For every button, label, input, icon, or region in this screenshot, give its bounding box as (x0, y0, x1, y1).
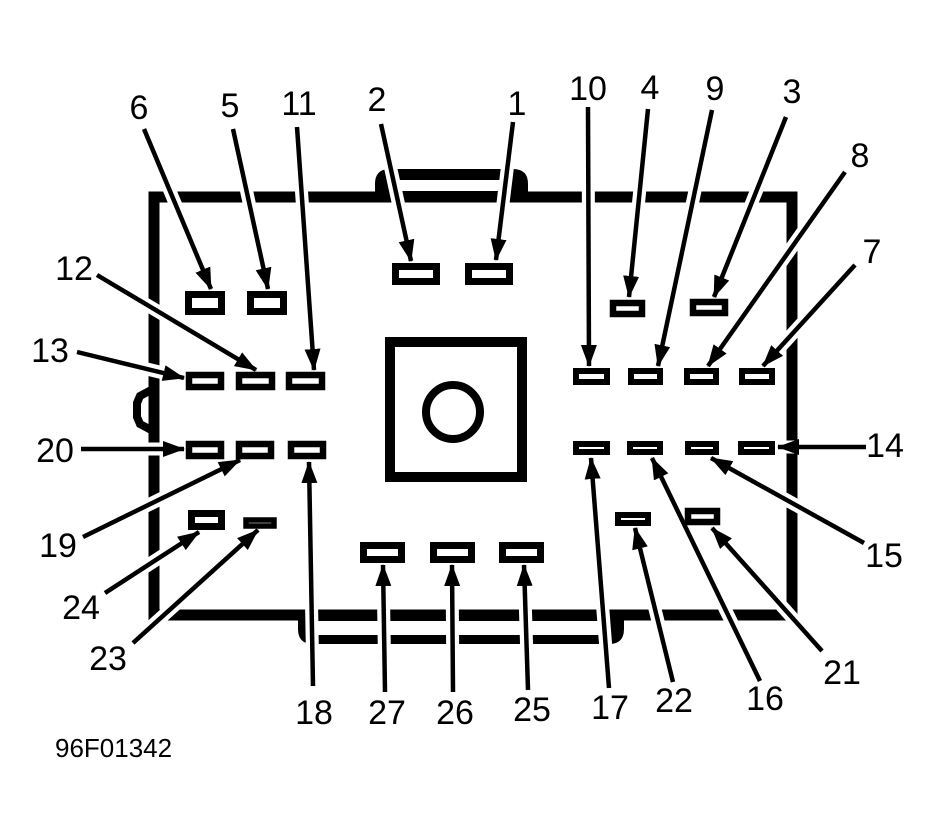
callout-8: 8 (851, 137, 870, 175)
callout-22: 22 (655, 682, 693, 720)
callout-26: 26 (436, 694, 474, 732)
fuse-26 (434, 546, 472, 560)
callout-20: 20 (36, 432, 74, 470)
callout-1: 1 (508, 85, 527, 123)
callout-3: 3 (783, 73, 802, 111)
fuse-2 (396, 267, 437, 282)
fuse-17 (576, 444, 607, 452)
callout-16: 16 (746, 680, 784, 718)
fuse-13 (189, 375, 221, 387)
callout-21: 21 (823, 654, 861, 692)
callout-19: 19 (39, 527, 77, 565)
callout-24: 24 (62, 589, 100, 627)
callout-18: 18 (295, 694, 333, 732)
callout-17: 17 (591, 689, 629, 727)
fuse-23 (246, 520, 274, 526)
arrow-27 (383, 565, 385, 692)
fuse-27 (364, 546, 402, 560)
fuse-6 (189, 295, 222, 312)
callout-9: 9 (706, 70, 725, 108)
fuse-22 (618, 515, 648, 523)
diagram-canvas: 1 2 3 4 5 6 7 8 9 10 11 12 13 14 15 16 1… (0, 0, 936, 834)
fuse-16 (630, 444, 660, 452)
center-circle (426, 385, 480, 439)
fuse-21 (688, 511, 717, 522)
fuse-3 (693, 302, 725, 313)
fuse-10 (576, 371, 607, 382)
arrow-26 (452, 565, 453, 692)
callout-25: 25 (513, 691, 551, 729)
fuse-panel-diagram: 1 2 3 4 5 6 7 8 9 10 11 12 13 14 15 16 1… (0, 0, 936, 834)
arrow-10 (588, 107, 589, 366)
callout-13: 13 (31, 332, 69, 370)
fuse-14 (741, 444, 772, 452)
bottom-tab-slot (316, 621, 606, 635)
callout-4: 4 (641, 69, 660, 107)
fuse-11 (289, 375, 322, 387)
fuse-9 (631, 371, 660, 382)
figure-code: 96F01342 (55, 733, 172, 763)
callout-15: 15 (865, 537, 903, 575)
callout-10: 10 (569, 70, 607, 108)
fuse-4 (613, 303, 642, 314)
fuse-1 (469, 267, 510, 282)
top-tab-slot (395, 180, 503, 191)
callout-7: 7 (863, 233, 882, 271)
fuse-15 (688, 444, 716, 452)
fuse-5 (251, 295, 284, 312)
callout-2: 2 (368, 81, 387, 119)
callout-5: 5 (221, 87, 240, 125)
fuse-24 (192, 514, 222, 527)
fuse-19 (239, 444, 271, 456)
fuse-18 (291, 444, 323, 456)
callout-27: 27 (368, 694, 406, 732)
callout-12: 12 (55, 250, 93, 288)
fuse-20 (189, 444, 221, 456)
callout-14: 14 (866, 427, 904, 465)
fuse-25 (503, 546, 541, 560)
fuse-7 (742, 371, 772, 382)
fuse-12 (239, 375, 272, 387)
callout-6: 6 (130, 89, 149, 127)
callout-11: 11 (281, 85, 316, 123)
callout-23: 23 (89, 640, 127, 678)
fuse-8 (687, 371, 716, 382)
